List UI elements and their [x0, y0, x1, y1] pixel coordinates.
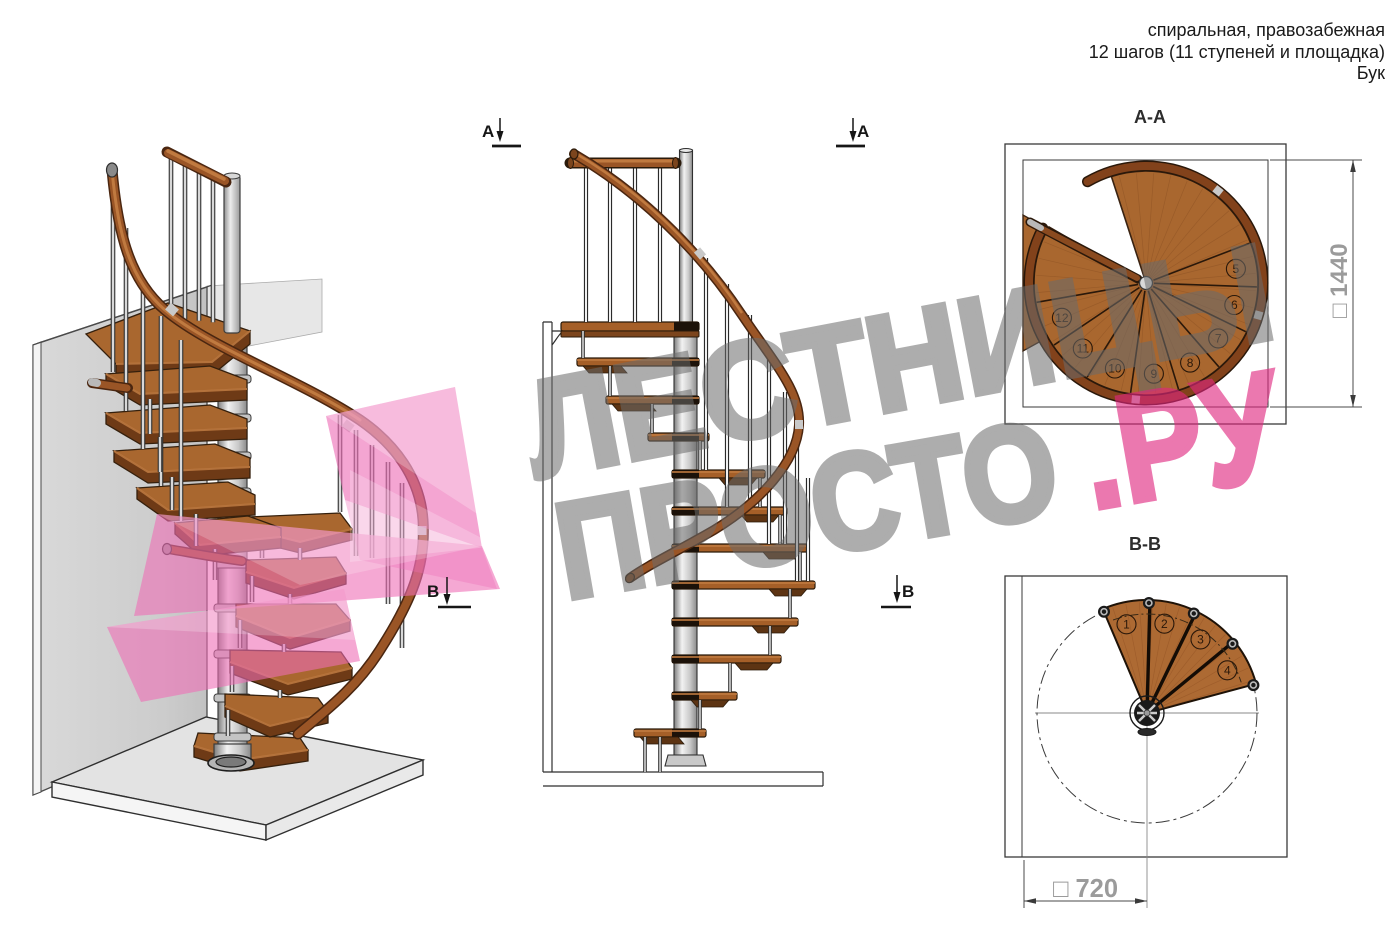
svg-text:2: 2: [1161, 617, 1168, 631]
svg-text:A: A: [482, 122, 494, 141]
svg-text:B: B: [902, 582, 914, 601]
svg-text:1: 1: [1123, 618, 1130, 632]
svg-text:3: 3: [1197, 633, 1204, 647]
svg-text:.РУ: .РУ: [1068, 339, 1296, 541]
svg-text:B: B: [427, 582, 439, 601]
svg-text:□ 1440: □ 1440: [1326, 243, 1353, 318]
svg-text:□ 720: □ 720: [1053, 875, 1118, 903]
svg-text:А-А: А-А: [1134, 107, 1166, 127]
svg-text:A: A: [857, 122, 869, 141]
svg-text:В-В: В-В: [1129, 534, 1161, 554]
svg-text:4: 4: [1224, 664, 1231, 678]
